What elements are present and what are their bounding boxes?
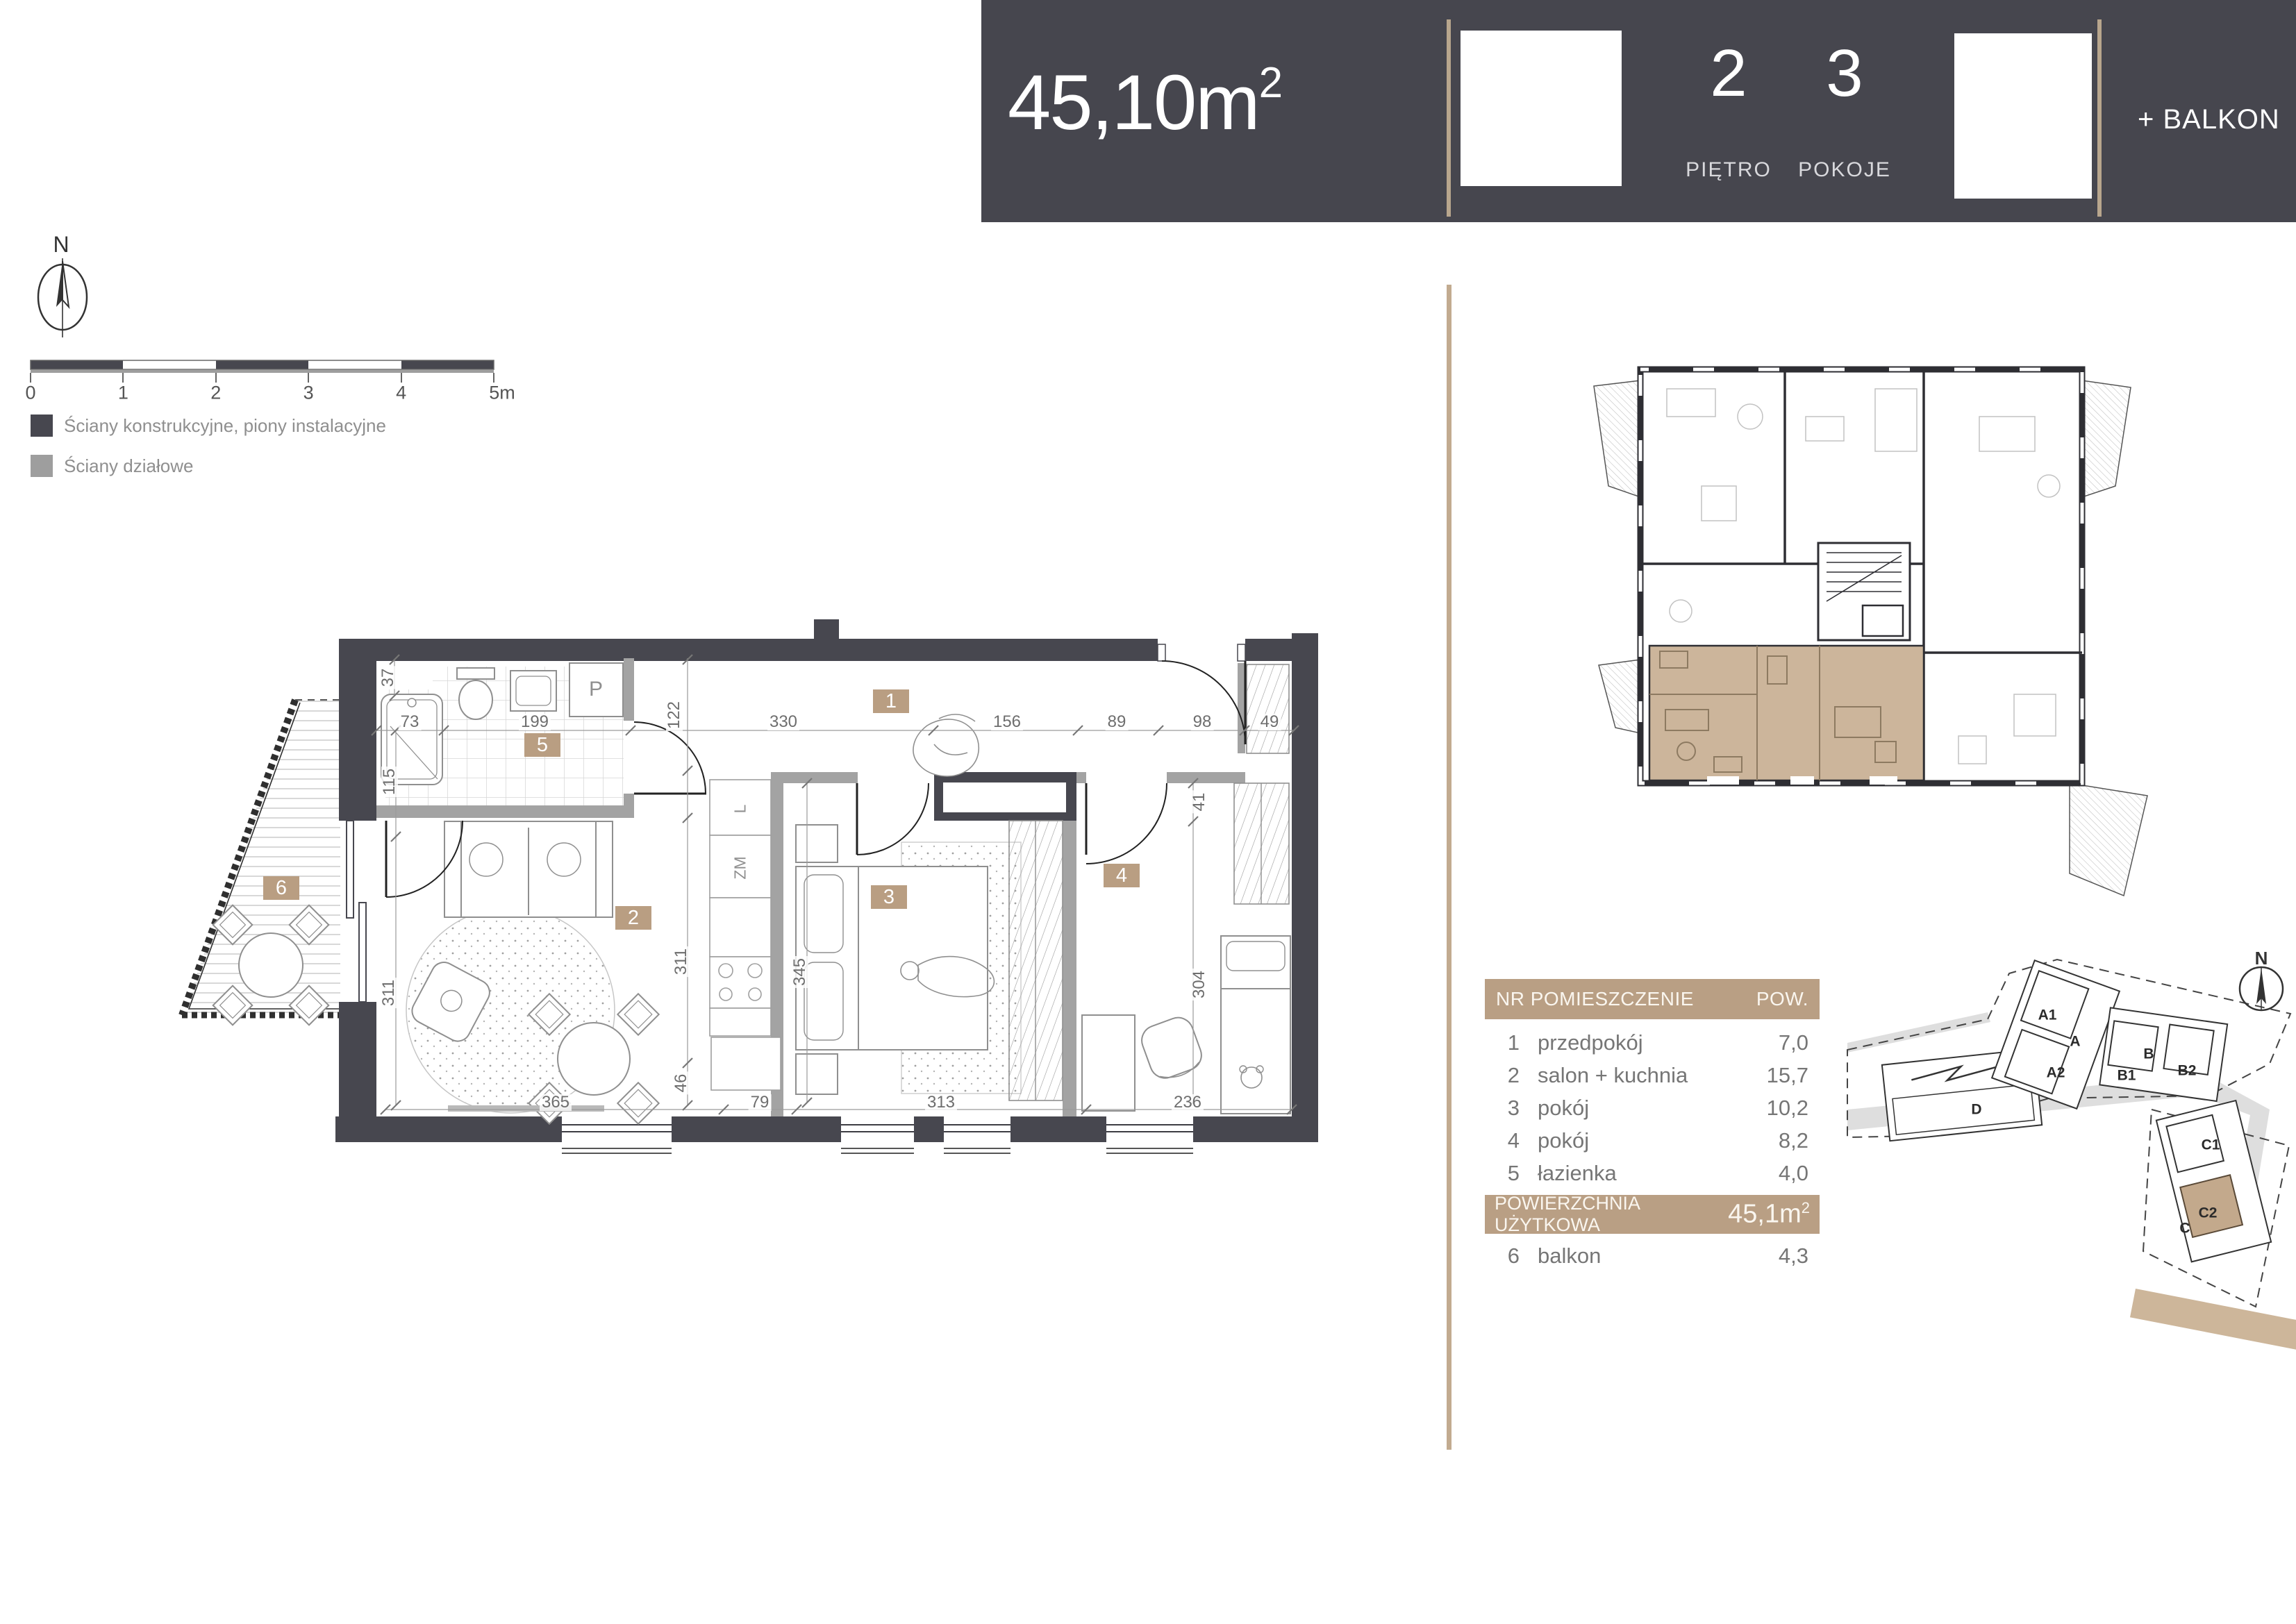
dimension-label: 122 — [666, 699, 683, 731]
legend-item: Ściany działowe — [31, 446, 386, 486]
area-superscript: 2 — [1259, 59, 1281, 107]
table-cell-nr: 2 — [1496, 1063, 1520, 1088]
scale-tick-label: 4 — [396, 384, 406, 403]
bedroom-4 — [1082, 783, 1290, 1114]
hallway-decor — [913, 714, 979, 776]
table-cell-nr: 3 — [1496, 1096, 1520, 1121]
floor-plan-drawing — [0, 0, 2296, 1624]
fixture-label: L — [733, 805, 749, 814]
site-building-label: D — [1971, 1103, 1981, 1117]
room-number-badge: 2 — [615, 906, 651, 930]
scale-tick-label: 5m — [489, 384, 515, 403]
area-title: 45,10m2 — [1008, 64, 1281, 142]
dimension-label: 311 — [381, 978, 397, 1008]
table-row: 6balkon4,3 — [1485, 1239, 1820, 1272]
site-building-label: C1 — [2202, 1138, 2220, 1153]
highlighted-unit — [1649, 646, 1924, 785]
table-cell-ar: 7,0 — [1779, 1030, 1808, 1055]
dimension-label: 365 — [540, 1094, 572, 1111]
site-building-label: B2 — [2178, 1064, 2197, 1078]
rooms-number: 3 — [1826, 40, 1863, 107]
compass-north-label: N — [53, 233, 69, 256]
scale-tick-label: 3 — [303, 384, 314, 403]
dimension-label: 89 — [1106, 714, 1129, 730]
legend-swatch — [31, 415, 53, 437]
dimension-label: 304 — [1191, 969, 1208, 1001]
dimension-label: 49 — [1258, 714, 1281, 730]
kitchen — [710, 780, 771, 1036]
dimension-label: 330 — [767, 714, 799, 730]
dimension-label: 236 — [1172, 1094, 1204, 1111]
rooms-table-extra: 6balkon4,3 — [1485, 1234, 1820, 1272]
table-row: 2salon + kuchnia15,7 — [1485, 1059, 1820, 1091]
rooms-label: POKOJE — [1798, 158, 1891, 182]
dimension-label: 73 — [399, 714, 422, 730]
dimension-label: 46 — [673, 1072, 690, 1095]
site-building-label: A — [2070, 1035, 2080, 1049]
fixture-label: ZM — [733, 856, 749, 879]
table-cell-ar: 10,2 — [1767, 1096, 1808, 1121]
room-number-badge: 6 — [263, 876, 299, 900]
table-row: 1przedpokój7,0 — [1485, 1026, 1820, 1059]
scale-tick-label: 0 — [25, 384, 35, 403]
rooms-table-total: POWIERZCHNIA UŻYTKOWA 45,1m2 — [1485, 1195, 1820, 1234]
scale-tick-label: 1 — [118, 384, 128, 403]
site-plan — [1847, 960, 2296, 1350]
floor-number: 2 — [1710, 40, 1747, 107]
table-cell-nr: 4 — [1496, 1128, 1520, 1153]
scale-tick-label: 2 — [210, 384, 221, 403]
page: 45,10m2 2 PIĘTRO 3 POKOJE + BALKON N N Ś… — [0, 0, 2296, 1624]
balcony-label: + BALKON — [2138, 104, 2280, 135]
dimension-label: 41 — [1191, 791, 1208, 814]
total-label: POWIERZCHNIA UŻYTKOWA — [1495, 1193, 1728, 1236]
table-cell-nm: łazienka — [1538, 1161, 1779, 1186]
balcony — [182, 700, 340, 1025]
entry-closet — [1247, 664, 1289, 753]
table-cell-ar: 8,2 — [1779, 1128, 1808, 1153]
table-cell-ar: 15,7 — [1767, 1063, 1808, 1088]
header-accent-line — [1447, 19, 1451, 217]
logo-placeholder-1 — [1461, 31, 1622, 186]
table-cell-nr: 6 — [1496, 1244, 1520, 1269]
rooms-table-header: NR POMIESZCZENIE POW. — [1485, 979, 1820, 1019]
rooms-table-rows: 1przedpokój7,02salon + kuchnia15,73pokój… — [1485, 1019, 1820, 1189]
legend: Ściany konstrukcyjne, piony instalacyjne… — [31, 405, 386, 486]
room-number-badge: 5 — [524, 733, 560, 757]
room-number-badge: 1 — [873, 689, 909, 713]
legend-item: Ściany konstrukcyjne, piony instalacyjne — [31, 405, 386, 446]
rooms-table: NR POMIESZCZENIE POW. 1przedpokój7,02sal… — [1485, 979, 1820, 1272]
legend-label: Ściany konstrukcyjne, piony instalacyjne — [64, 415, 386, 437]
col-area: POW. — [1756, 988, 1808, 1010]
dimension-label: 37 — [380, 667, 397, 689]
header-accent-line-2 — [2097, 19, 2102, 217]
bedroom-3 — [796, 821, 1063, 1100]
dimension-label: 345 — [792, 956, 808, 988]
dimension-label: 98 — [1191, 714, 1214, 730]
room-number-badge: 3 — [871, 885, 907, 909]
section-divider — [1447, 285, 1451, 1450]
site-building-label: A1 — [2038, 1008, 2057, 1023]
site-building-label: C2 — [2199, 1206, 2218, 1221]
legend-label: Ściany działowe — [64, 455, 193, 477]
site-building-label: C — [2179, 1221, 2190, 1236]
total-value: 45,1m2 — [1728, 1199, 1810, 1230]
table-cell-ar: 4,0 — [1779, 1161, 1808, 1186]
building-overview — [1594, 369, 2147, 896]
dimension-label: 199 — [519, 714, 551, 730]
scale-bar — [31, 360, 494, 383]
table-cell-nr: 1 — [1496, 1030, 1520, 1055]
dimension-label: 311 — [673, 946, 690, 977]
table-cell-nr: 5 — [1496, 1161, 1520, 1186]
living-room — [406, 821, 659, 1124]
col-nr-name: NR POMIESZCZENIE — [1496, 988, 1694, 1010]
north-compass — [38, 258, 87, 337]
dimension-label: 79 — [749, 1094, 772, 1111]
site-building-label: B1 — [2118, 1069, 2136, 1083]
dimension-label: 156 — [991, 714, 1023, 730]
table-cell-nm: salon + kuchnia — [1538, 1063, 1767, 1088]
table-cell-ar: 4,3 — [1779, 1244, 1808, 1269]
logo-placeholder-2 — [1954, 33, 2092, 199]
site-compass-north-label: N — [2255, 949, 2268, 967]
table-row: 4pokój8,2 — [1485, 1124, 1820, 1157]
table-cell-nm: przedpokój — [1538, 1030, 1779, 1055]
table-row: 3pokój10,2 — [1485, 1091, 1820, 1124]
dimension-label: 115 — [381, 767, 398, 797]
site-building-label: A2 — [2047, 1066, 2065, 1080]
floor-label: PIĘTRO — [1686, 158, 1772, 182]
dimension-label: 313 — [925, 1094, 957, 1111]
room-number-badge: 4 — [1104, 864, 1140, 887]
table-cell-nm: balkon — [1538, 1244, 1779, 1269]
table-cell-nm: pokój — [1538, 1128, 1779, 1153]
site-building-label: B — [2143, 1047, 2154, 1062]
legend-swatch — [31, 455, 53, 477]
fixture-label: P — [589, 679, 603, 700]
table-cell-nm: pokój — [1538, 1096, 1767, 1121]
table-row: 5łazienka4,0 — [1485, 1157, 1820, 1189]
apartment-plan — [182, 619, 1318, 1153]
header: 45,10m2 2 PIĘTRO 3 POKOJE + BALKON — [981, 0, 2296, 222]
